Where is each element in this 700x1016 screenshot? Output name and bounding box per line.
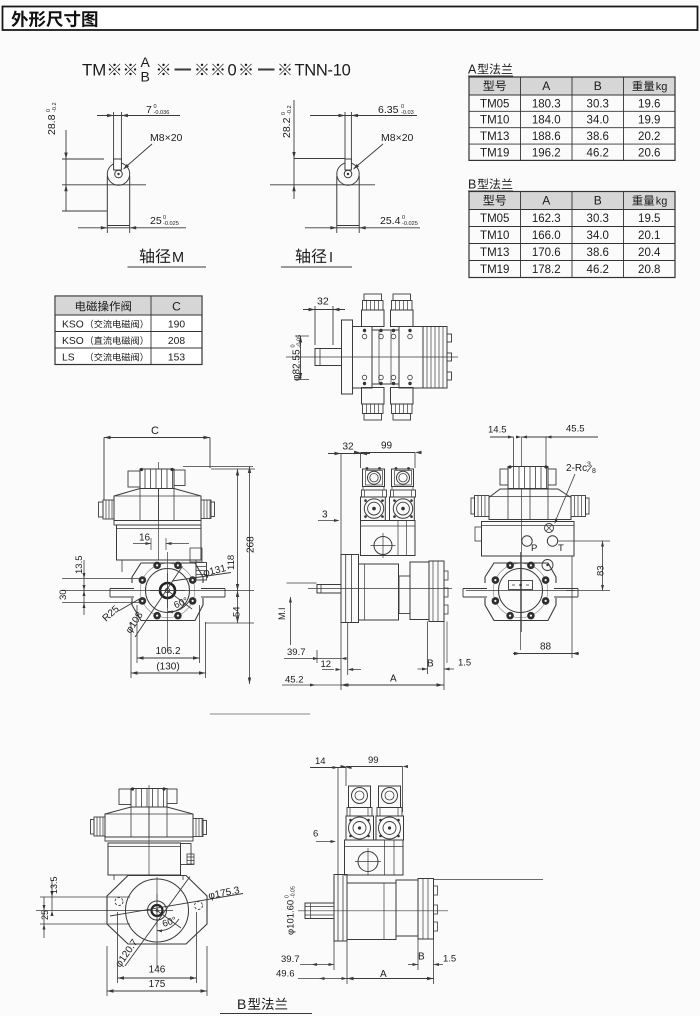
svg-text:83: 83 (596, 565, 607, 576)
svg-text:TM13: TM13 (480, 247, 509, 259)
svg-text:6: 6 (313, 829, 318, 840)
svg-text:TM19: TM19 (480, 264, 509, 276)
svg-text:-0.036: -0.036 (154, 110, 170, 116)
svg-text:46.2: 46.2 (587, 264, 609, 276)
svg-text:8: 8 (592, 468, 596, 475)
svg-text:B: B (141, 69, 150, 85)
svg-text:0: 0 (163, 215, 166, 221)
svg-text:φ175.3: φ175.3 (207, 885, 240, 902)
svg-text:kg: kg (656, 196, 668, 208)
svg-text:kg: kg (656, 81, 668, 93)
svg-text:6.35: 6.35 (378, 104, 399, 116)
svg-text:28.2: 28.2 (281, 117, 293, 138)
svg-text:TM: TM (82, 61, 106, 80)
svg-text:M8×20: M8×20 (381, 132, 414, 144)
svg-text:-0.025: -0.025 (163, 221, 179, 227)
svg-text:153: 153 (168, 353, 185, 364)
svg-text:TM05: TM05 (480, 213, 509, 225)
svg-text:0: 0 (290, 344, 296, 347)
svg-text:φ108: φ108 (124, 610, 146, 636)
svg-text:14: 14 (315, 756, 326, 767)
svg-text:B: B (594, 79, 602, 93)
svg-text:B: B (468, 178, 476, 192)
svg-text:0: 0 (46, 109, 52, 112)
svg-text:32: 32 (343, 442, 355, 453)
svg-text:TM10: TM10 (480, 115, 509, 127)
svg-text:KSO: KSO (62, 320, 84, 331)
svg-text:TM05: TM05 (480, 98, 509, 110)
svg-text:25: 25 (150, 215, 162, 227)
svg-text:P: P (531, 543, 537, 554)
svg-text:166.0: 166.0 (532, 230, 561, 242)
svg-text:32: 32 (317, 296, 329, 308)
svg-text:19.6: 19.6 (638, 98, 660, 110)
svg-text:175: 175 (149, 979, 166, 990)
svg-text:φ82.55: φ82.55 (292, 349, 303, 381)
svg-text:88: 88 (540, 642, 552, 653)
svg-text:C: C (151, 425, 159, 437)
svg-text:B: B (427, 659, 434, 670)
svg-text:(130): (130) (156, 662, 179, 673)
svg-text:B: B (418, 952, 425, 963)
svg-text:1.5: 1.5 (458, 658, 471, 669)
svg-text:0: 0 (281, 112, 287, 115)
svg-text:M.I: M.I (277, 608, 287, 621)
svg-text:0: 0 (402, 215, 405, 221)
svg-text:20.6: 20.6 (638, 147, 660, 159)
svg-text:190: 190 (168, 320, 185, 331)
svg-text:45.5: 45.5 (566, 424, 585, 435)
svg-text:178.2: 178.2 (532, 264, 561, 276)
svg-text:KSO: KSO (62, 336, 84, 347)
svg-text:TNN-10: TNN-10 (295, 62, 351, 80)
svg-text:20.1: 20.1 (638, 230, 660, 242)
svg-text:C: C (172, 300, 181, 314)
svg-text:34.0: 34.0 (587, 230, 609, 242)
svg-text:R25: R25 (101, 603, 122, 624)
svg-text:39.7: 39.7 (281, 954, 300, 965)
svg-text:146: 146 (149, 965, 166, 976)
svg-text:20.8: 20.8 (638, 264, 660, 276)
svg-text:184.0: 184.0 (532, 115, 561, 127)
svg-text:0: 0 (154, 104, 157, 110)
svg-text:-0.025: -0.025 (402, 221, 418, 227)
svg-text:A: A (542, 79, 550, 93)
svg-text:-0.05: -0.05 (291, 886, 297, 898)
svg-text:-0.2: -0.2 (52, 102, 58, 112)
svg-text:0: 0 (401, 104, 404, 110)
svg-text:208: 208 (168, 336, 185, 347)
svg-text:B: B (237, 996, 246, 1012)
svg-text:49.6: 49.6 (276, 969, 295, 980)
svg-text:38.6: 38.6 (587, 131, 609, 143)
svg-text:16: 16 (139, 533, 151, 544)
svg-text:A: A (542, 194, 550, 208)
svg-text:99: 99 (368, 755, 379, 766)
svg-text:TM13: TM13 (480, 131, 509, 143)
svg-text:268: 268 (246, 536, 257, 553)
svg-text:M: M (172, 250, 184, 266)
svg-text:25.4: 25.4 (380, 215, 401, 227)
svg-text:φ101.60: φ101.60 (286, 900, 297, 935)
svg-text:30.3: 30.3 (587, 98, 609, 110)
svg-text:14.5: 14.5 (488, 425, 507, 436)
svg-text:A: A (390, 674, 397, 685)
svg-text:196.2: 196.2 (532, 147, 561, 159)
svg-text:0: 0 (228, 62, 237, 80)
svg-text:30: 30 (58, 589, 69, 600)
svg-text:3: 3 (322, 510, 328, 521)
svg-text:99: 99 (381, 441, 393, 452)
svg-text:0: 0 (284, 895, 290, 898)
svg-text:180.3: 180.3 (532, 98, 561, 110)
svg-text:M8×20: M8×20 (150, 132, 183, 144)
svg-text:34.0: 34.0 (587, 115, 609, 127)
svg-text:30.3: 30.3 (587, 213, 609, 225)
svg-text:25: 25 (40, 910, 50, 920)
svg-text:B: B (594, 194, 602, 208)
svg-text:13.5: 13.5 (49, 876, 59, 894)
svg-text:28.8: 28.8 (46, 114, 58, 135)
svg-text:φ131: φ131 (202, 563, 228, 579)
svg-text:38.6: 38.6 (587, 247, 609, 259)
svg-text:12: 12 (321, 659, 332, 670)
svg-text:T: T (558, 543, 564, 554)
svg-text:46.2: 46.2 (587, 147, 609, 159)
svg-text:19.5: 19.5 (638, 213, 660, 225)
svg-text:TM10: TM10 (480, 230, 509, 242)
svg-text:188.6: 188.6 (532, 131, 561, 143)
svg-text:-0.05: -0.05 (297, 335, 303, 348)
svg-text:39.7: 39.7 (287, 647, 306, 658)
svg-text:LS: LS (62, 353, 75, 364)
svg-text:106.2: 106.2 (155, 646, 180, 657)
svg-text:20.4: 20.4 (638, 247, 661, 259)
svg-text:54: 54 (232, 606, 243, 617)
svg-text:20.2: 20.2 (638, 131, 660, 143)
svg-text:170.6: 170.6 (532, 247, 561, 259)
svg-text:1.5: 1.5 (443, 954, 456, 965)
svg-text:2-Rc: 2-Rc (566, 463, 587, 474)
svg-text:7: 7 (146, 104, 152, 116)
svg-text:A: A (468, 63, 477, 77)
svg-text:13.5: 13.5 (74, 556, 85, 575)
svg-text:19.9: 19.9 (638, 115, 660, 127)
svg-text:TM19: TM19 (480, 147, 509, 159)
svg-text:-0.03: -0.03 (401, 110, 414, 116)
svg-text:45.2: 45.2 (285, 675, 304, 686)
svg-text:-0.2: -0.2 (287, 105, 293, 115)
svg-text:162.3: 162.3 (532, 213, 561, 225)
svg-text:I: I (329, 250, 333, 266)
svg-text:118: 118 (226, 555, 237, 570)
